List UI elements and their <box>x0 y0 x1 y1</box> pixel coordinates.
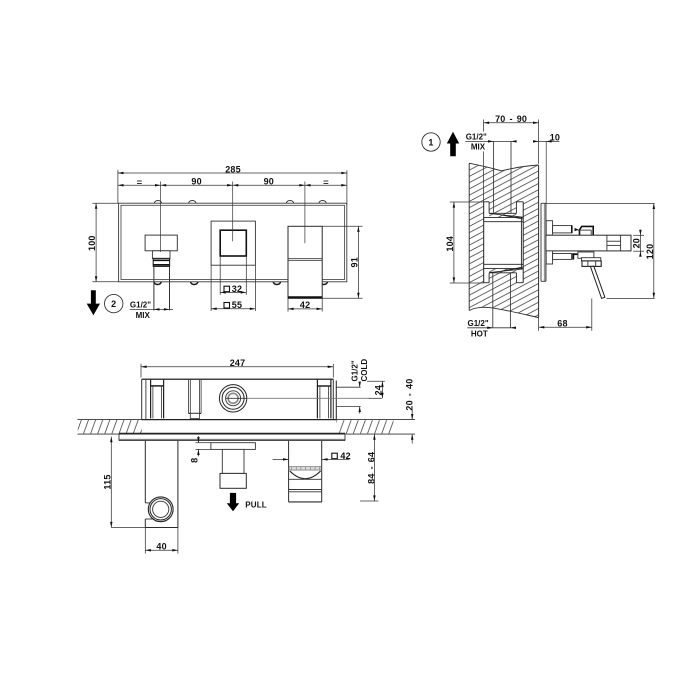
svg-text:115: 115 <box>103 474 113 489</box>
svg-text:68: 68 <box>557 319 567 329</box>
svg-text:285: 285 <box>225 164 241 174</box>
svg-text:G1/2": G1/2" <box>466 133 487 142</box>
svg-text:G1/2": G1/2" <box>468 319 489 328</box>
svg-text:70 - 90: 70 - 90 <box>495 114 527 124</box>
svg-text:40: 40 <box>156 542 166 552</box>
svg-text:10: 10 <box>550 133 560 143</box>
svg-text:90: 90 <box>264 177 274 187</box>
svg-text:MIX: MIX <box>471 142 486 151</box>
svg-text:84 - 64: 84 - 64 <box>367 452 377 484</box>
svg-text:42: 42 <box>340 451 350 461</box>
svg-text:100: 100 <box>87 235 97 251</box>
svg-text:G1/2": G1/2" <box>130 301 151 310</box>
svg-text:1: 1 <box>428 137 433 147</box>
svg-text:32: 32 <box>232 284 242 294</box>
svg-text:2: 2 <box>111 299 116 309</box>
svg-text:G1/2": G1/2" <box>351 360 360 381</box>
svg-text:120: 120 <box>645 244 655 260</box>
svg-text:24: 24 <box>374 385 384 395</box>
svg-text:247: 247 <box>230 358 246 368</box>
svg-text:90: 90 <box>191 177 201 187</box>
svg-text:91: 91 <box>349 257 359 267</box>
svg-text:8: 8 <box>190 458 200 463</box>
svg-text:COLD: COLD <box>360 359 369 382</box>
svg-text:MIX: MIX <box>136 311 151 320</box>
svg-text:104: 104 <box>445 236 455 252</box>
svg-text:HOT: HOT <box>471 329 488 338</box>
svg-text:20: 20 <box>632 238 642 248</box>
svg-text:PULL: PULL <box>245 501 267 510</box>
svg-text:55: 55 <box>232 300 242 310</box>
svg-text:20 - 40: 20 - 40 <box>405 379 415 411</box>
svg-text:42: 42 <box>300 300 310 310</box>
